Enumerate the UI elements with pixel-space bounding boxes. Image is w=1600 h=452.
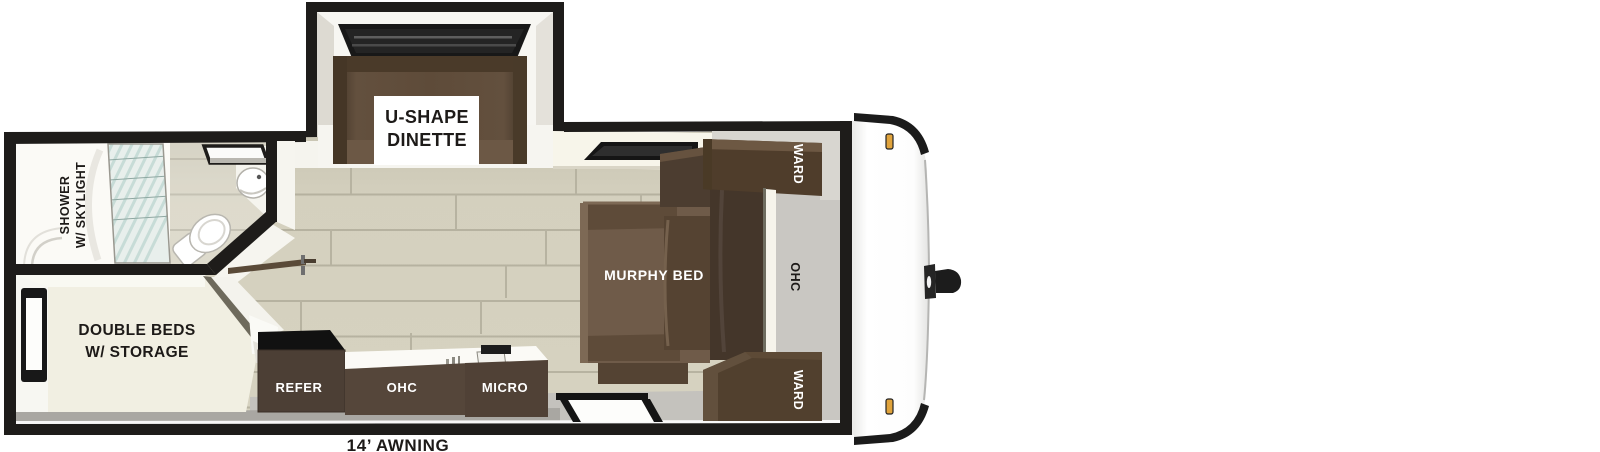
- svg-text:OHC: OHC: [788, 262, 802, 291]
- svg-text:WARD: WARD: [791, 144, 805, 184]
- svg-text:14’ AWNING: 14’ AWNING: [347, 436, 450, 452]
- svg-text:OHC: OHC: [387, 380, 418, 395]
- svg-text:WARD: WARD: [791, 370, 805, 410]
- svg-text:W/ STORAGE: W/ STORAGE: [85, 344, 189, 361]
- svg-text:REFER: REFER: [275, 380, 322, 395]
- svg-text:DINETTE: DINETTE: [387, 130, 467, 150]
- svg-text:MURPHY BED: MURPHY BED: [604, 267, 704, 283]
- svg-text:U-SHAPE: U-SHAPE: [385, 107, 469, 127]
- svg-text:W/ SKYLIGHT: W/ SKYLIGHT: [74, 162, 88, 248]
- svg-text:MICRO: MICRO: [482, 380, 528, 395]
- svg-text:SHOWER: SHOWER: [58, 176, 72, 235]
- svg-text:DOUBLE BEDS: DOUBLE BEDS: [78, 322, 195, 339]
